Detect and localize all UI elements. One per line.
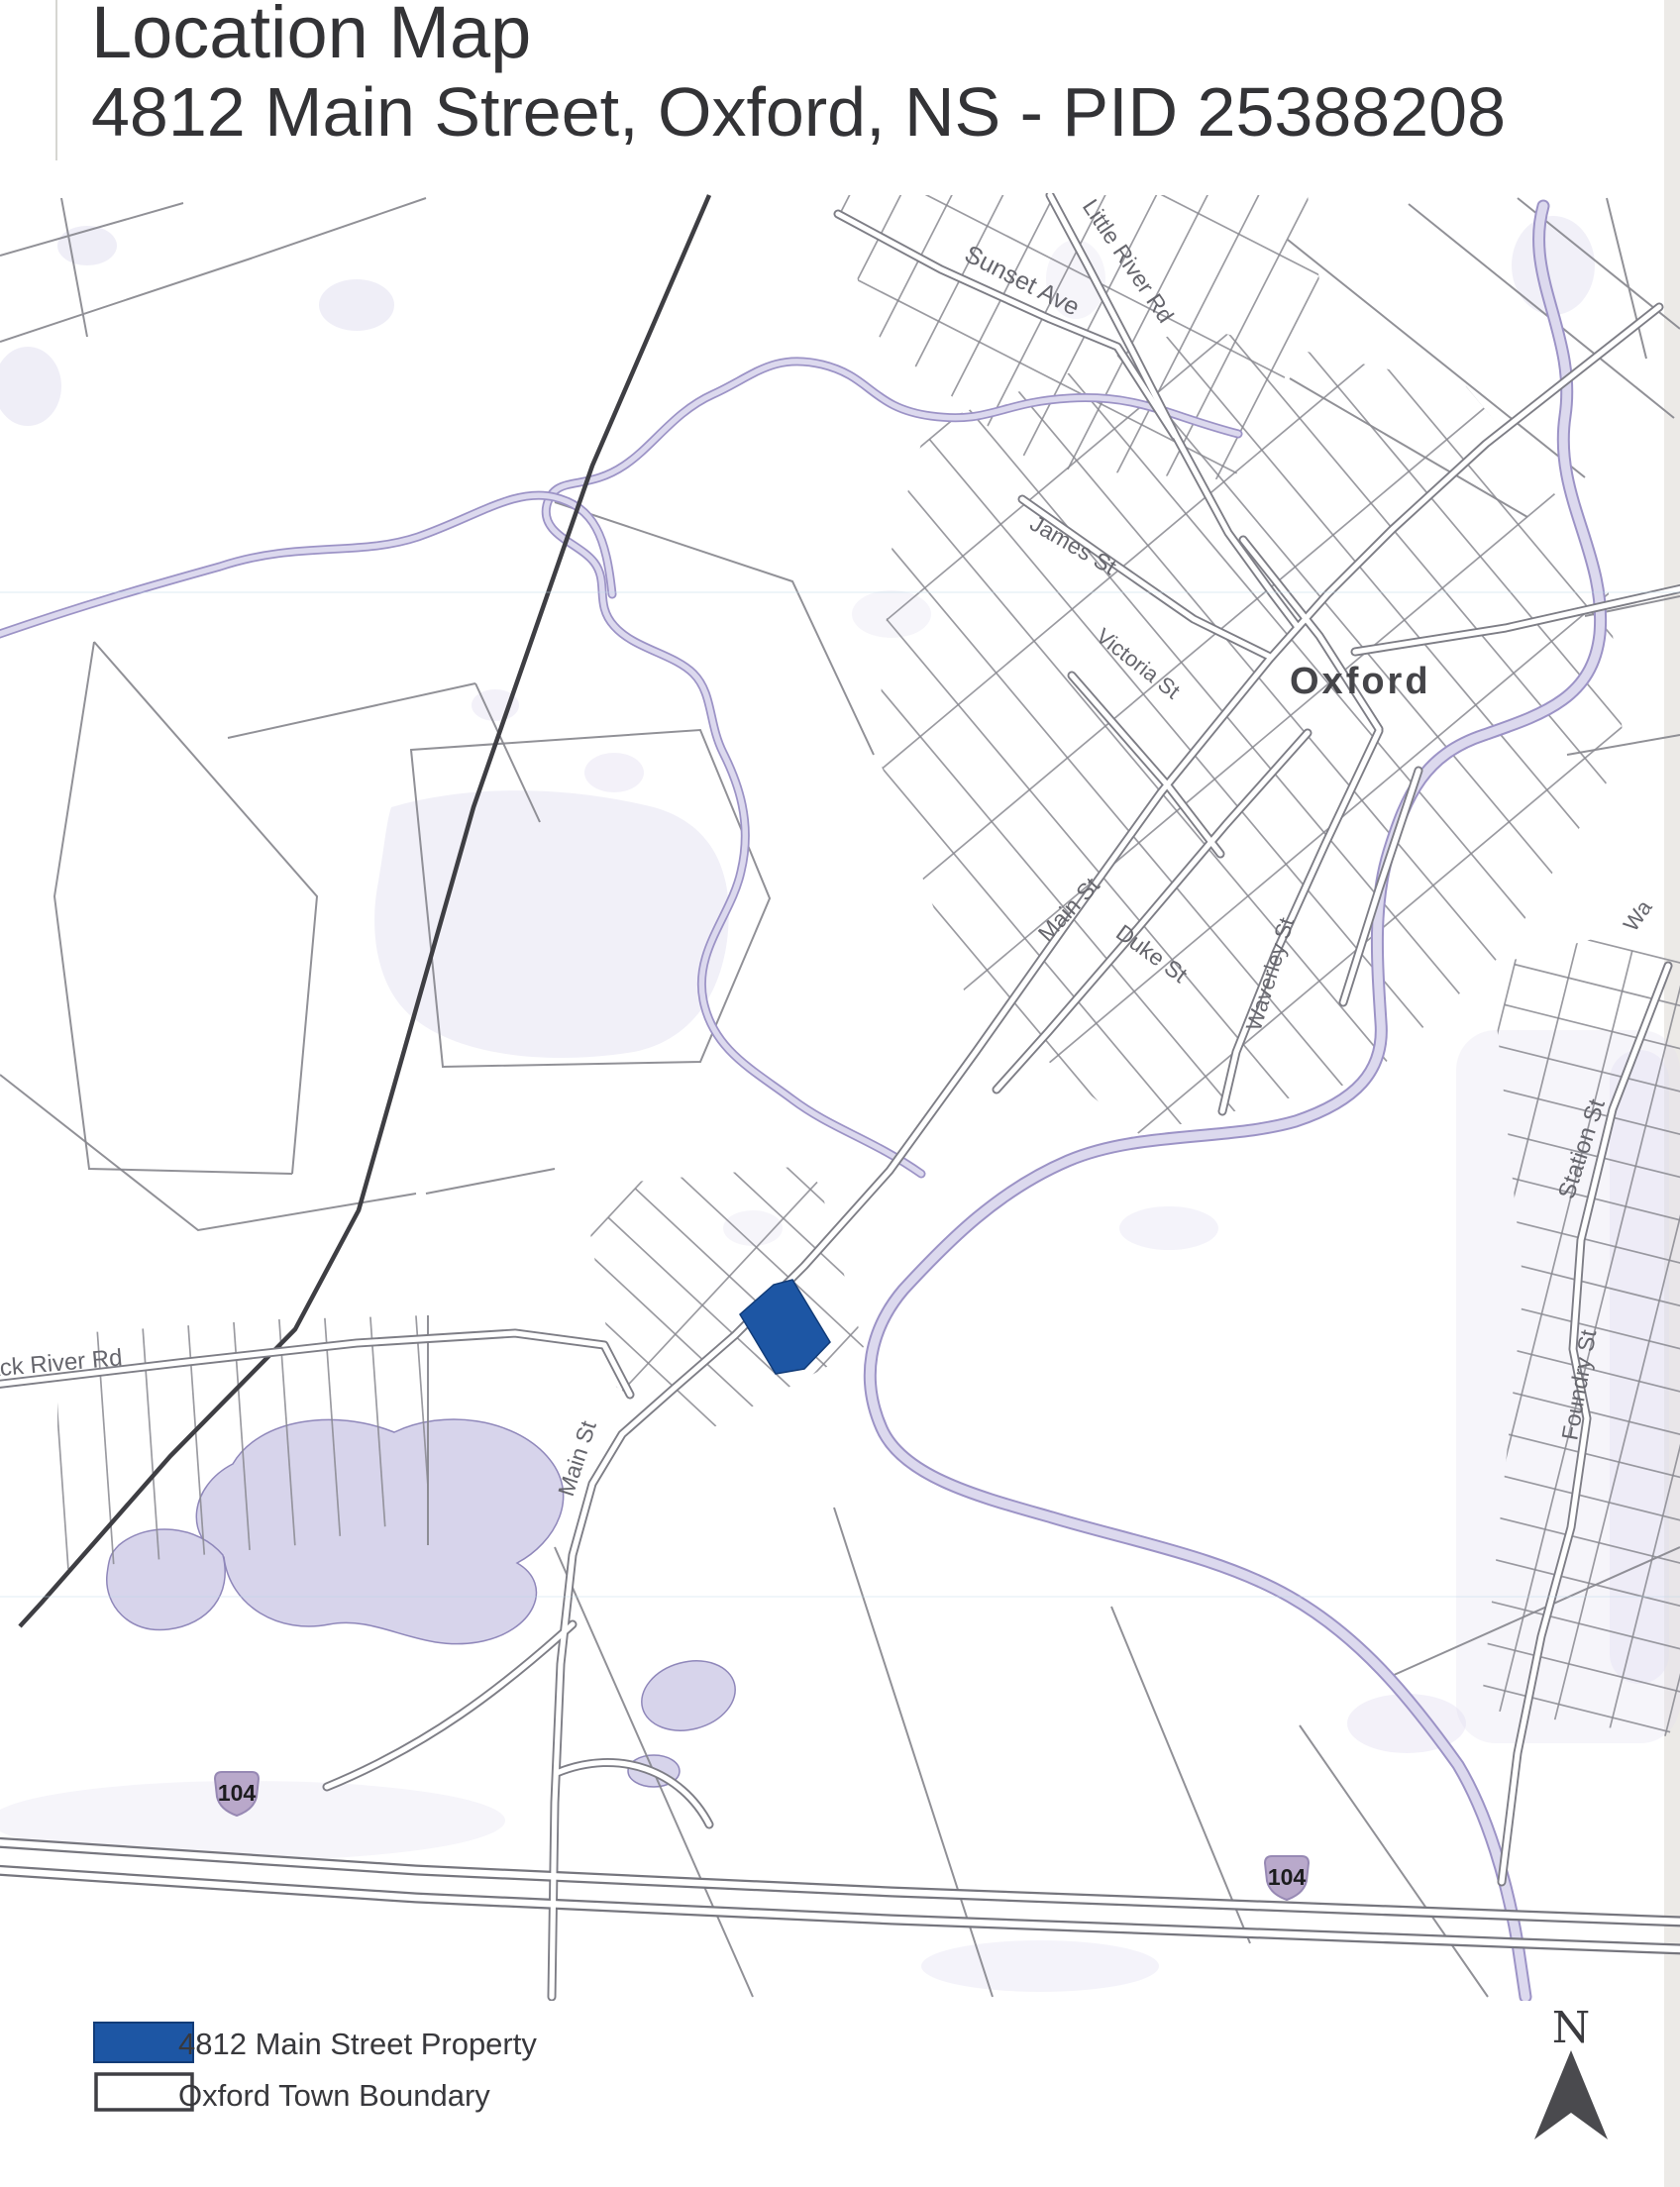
map-content: Sunset Ave Little River Rd James St Vict…: [0, 0, 1680, 1997]
pond-1: [634, 1651, 743, 1741]
scanned-location-map-page: Location Map 4812 Main Street, Oxford, N…: [0, 0, 1680, 2187]
north-arrow: N: [1534, 2003, 1608, 2139]
highway-number: 104: [1268, 1864, 1307, 1890]
subject-property-parcel: [740, 1280, 830, 1374]
street-labels: Sunset Ave Little River Rd James St Vict…: [0, 194, 1657, 1499]
label-james-st: James St: [1026, 510, 1122, 580]
label-water-st-partial: Wa: [1619, 895, 1657, 936]
lake-lobe: [107, 1529, 225, 1630]
legend-label-property: 4812 Main Street Property: [178, 2027, 537, 2061]
label-town-oxford: Oxford: [1290, 661, 1431, 702]
lakes: [107, 1419, 743, 1787]
north-arrow-icon: [1534, 2050, 1608, 2139]
highway-number: 104: [218, 1780, 257, 1806]
label-victoria-st: Victoria St: [1092, 623, 1185, 703]
legend: 4812 Main Street Property Oxford Town Bo…: [94, 2023, 537, 2113]
map-canvas: Sunset Ave Little River Rd James St Vict…: [0, 0, 1680, 2187]
north-label: N: [1552, 2003, 1591, 2053]
legend-label-boundary: Oxford Town Boundary: [178, 2078, 490, 2113]
highway-shield-104-east: 104: [1265, 1856, 1309, 1900]
